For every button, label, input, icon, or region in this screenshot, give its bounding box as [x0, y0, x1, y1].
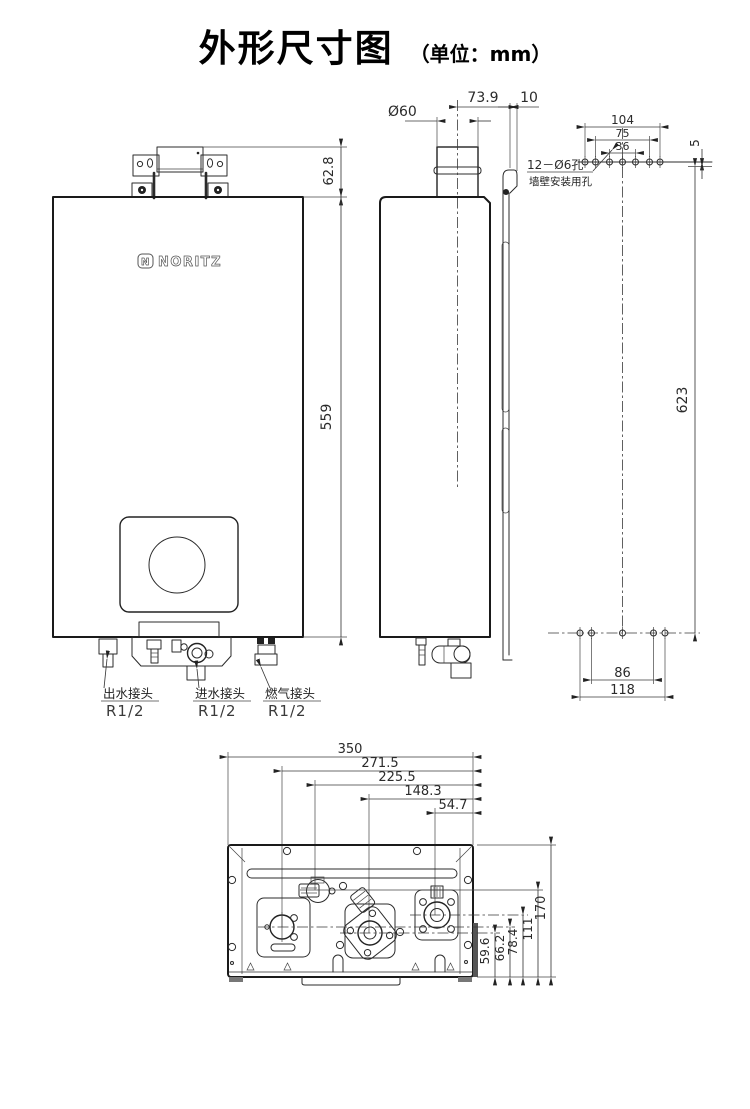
bottom-panel-seam	[139, 622, 219, 637]
dim-label-271-5: 271.5	[361, 756, 398, 771]
dim-label-118: 118	[610, 683, 635, 698]
rear-top-dimensions: 104 75 36	[585, 113, 660, 157]
dim-label-36: 36	[616, 140, 630, 153]
inlet-plate	[328, 887, 401, 963]
rear-bottom-dimensions: 86 118	[580, 638, 665, 701]
gas-plate	[415, 886, 458, 940]
noritz-logo: N NORITZ	[138, 254, 222, 270]
bottom-hole-row	[548, 627, 700, 639]
drawing-canvas: N NORITZ	[0, 0, 750, 1109]
dim-label-10: 10	[520, 90, 538, 106]
inlet-label-text: 进水接头	[195, 686, 245, 701]
gas-size-text: R1/2	[268, 702, 307, 720]
outlet-size-text: R1/2	[106, 702, 145, 720]
inlet-label: 进水接头 R1/2	[193, 669, 251, 720]
dimension-drawing-page: 外形尺寸图 （单位：mm）	[0, 0, 750, 1109]
connection-labels: 出水接头 R1/2 进水接头 R1/2 燃气接头 R1/2	[101, 659, 321, 720]
side-bottom-fittings	[416, 638, 471, 678]
viewing-window	[120, 517, 238, 612]
outlet-fitting	[99, 639, 117, 667]
bottom-view: 350 271.5 225.5 148.3 54.7	[228, 742, 556, 985]
hole-note-line1: 12－Ø6孔	[527, 158, 583, 172]
outlet-label-text: 出水接头	[103, 686, 153, 701]
dim-label-73-9: 73.9	[467, 90, 498, 106]
outlet-plate	[257, 898, 310, 957]
noritz-logo-text: NORITZ	[158, 255, 222, 270]
gas-label-text: 燃气接头	[265, 686, 315, 701]
dim-label-104: 104	[611, 113, 634, 127]
wall-mount-rail	[502, 170, 517, 660]
dim-label-225-5: 225.5	[378, 770, 415, 785]
inlet-size-text: R1/2	[198, 702, 237, 720]
rear-mounting-view: 104 75 36 12－Ø6孔 墙壁安装用孔 5 623	[527, 113, 712, 701]
dim-label-559: 559	[319, 404, 335, 431]
dim-label-78-4: 78.4	[506, 929, 520, 956]
bottom-v-dimensions: 59.6 66.2 78.4 111 170	[478, 845, 551, 977]
mounting-hole-note: 12－Ø6孔 墙壁安装用孔	[527, 150, 612, 188]
flue-pipe	[434, 100, 481, 490]
dim-label-350: 350	[338, 742, 363, 757]
dim-label-170: 170	[534, 896, 549, 921]
outlet-label: 出水接头 R1/2	[101, 659, 159, 720]
hole-note-line2: 墙壁安装用孔	[529, 175, 592, 188]
dim-label-86: 86	[614, 666, 631, 681]
bottom-h-extensions	[228, 752, 473, 933]
dim-label-flue-diameter: Ø60	[388, 104, 417, 120]
dim-label-148-3: 148.3	[404, 784, 441, 799]
flue-dimensions: Ø60 73.9 10	[388, 90, 539, 171]
side-view: Ø60 73.9 10	[380, 90, 539, 678]
gas-label: 燃气接头 R1/2	[261, 667, 321, 720]
dim-label-111: 111	[521, 918, 535, 941]
noritz-logo-icon: N	[141, 257, 149, 268]
vent-slot	[247, 869, 457, 878]
dim-label-62-8: 62.8	[322, 157, 337, 186]
front-view: N NORITZ	[53, 147, 347, 720]
dim-label-54-7: 54.7	[439, 798, 468, 813]
dim-label-623: 623	[675, 387, 691, 414]
gas-fitting	[255, 638, 277, 665]
front-height-dimensions: 62.8 559	[203, 147, 347, 637]
dim-label-5: 5	[688, 139, 702, 147]
bottom-connections	[99, 637, 277, 680]
rear-height-dimensions: 5 623	[675, 139, 712, 633]
dim-label-59-6: 59.6	[478, 938, 492, 965]
dim-label-75: 75	[616, 127, 630, 140]
inlet-valve-assembly	[147, 640, 213, 680]
side-body-outline	[380, 197, 490, 637]
bottom-h-dimensions: 350 271.5 225.5 148.3 54.7	[228, 742, 473, 813]
top-mounting-bracket	[132, 147, 228, 198]
dim-label-66-2: 66.2	[493, 935, 507, 962]
